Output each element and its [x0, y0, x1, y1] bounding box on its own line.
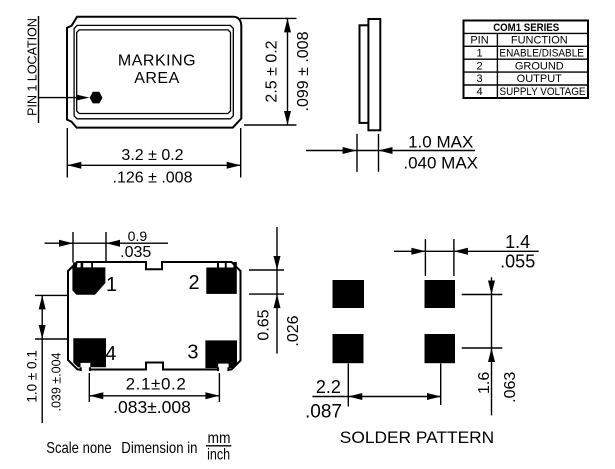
svg-text:1.0 MAX: 1.0 MAX [408, 133, 473, 152]
svg-text:FUNCTION: FUNCTION [511, 35, 568, 47]
svg-text:.126 ± .008: .126 ± .008 [113, 169, 193, 186]
svg-text:ENABLE/DISABLE: ENABLE/DISABLE [499, 47, 584, 59]
svg-text:SUPPLY VOLTAGE: SUPPLY VOLTAGE [500, 86, 586, 98]
svg-text:1.6: 1.6 [476, 372, 493, 394]
svg-text:.039 ±.004: .039 ±.004 [50, 352, 64, 411]
svg-text:0.9: 0.9 [128, 228, 148, 244]
svg-text:inch: inch [207, 447, 230, 464]
svg-text:2: 2 [476, 60, 482, 72]
svg-text:1.4: 1.4 [505, 232, 530, 252]
svg-text:mm: mm [208, 430, 231, 447]
svg-text:Dimension in: Dimension in [121, 440, 197, 457]
svg-text:2.5 ± 0.2: 2.5 ± 0.2 [263, 40, 280, 102]
svg-text:GROUND: GROUND [515, 60, 564, 72]
svg-text:2.2: 2.2 [316, 377, 341, 397]
svg-text:.063: .063 [502, 372, 519, 403]
svg-text:1: 1 [476, 47, 482, 59]
svg-text:2: 2 [188, 272, 199, 294]
svg-text:.035: .035 [120, 244, 151, 261]
svg-text:1: 1 [106, 274, 117, 296]
svg-text:3: 3 [476, 73, 482, 85]
svg-text:.026: .026 [285, 315, 302, 346]
svg-text:Scale none: Scale none [46, 440, 111, 457]
svg-text:4: 4 [476, 86, 482, 98]
svg-text:OUTPUT: OUTPUT [517, 73, 563, 85]
svg-text:SOLDER PATTERN: SOLDER PATTERN [340, 428, 494, 447]
svg-text:2.1±0.2: 2.1±0.2 [126, 375, 187, 394]
svg-text:MARKING: MARKING [118, 53, 196, 70]
svg-text:4: 4 [105, 343, 116, 365]
svg-text:3.2 ± 0.2: 3.2 ± 0.2 [121, 147, 183, 164]
svg-text:PIN: PIN [470, 35, 488, 47]
svg-text:1.0 ± 0.1: 1.0 ± 0.1 [24, 350, 39, 402]
svg-text:.040 MAX: .040 MAX [403, 154, 478, 173]
svg-text:.055: .055 [500, 252, 535, 272]
svg-text:COM1 SERIES: COM1 SERIES [493, 22, 559, 34]
svg-text:.087: .087 [305, 402, 342, 423]
svg-text:0.65: 0.65 [255, 309, 272, 340]
svg-text:3: 3 [187, 341, 198, 363]
svg-text:.083±.008: .083±.008 [113, 397, 191, 417]
svg-text:PIN 1 LOCATION: PIN 1 LOCATION [26, 18, 40, 116]
svg-text:AREA: AREA [134, 70, 180, 87]
svg-text:.099 ± .008: .099 ± .008 [295, 31, 312, 111]
